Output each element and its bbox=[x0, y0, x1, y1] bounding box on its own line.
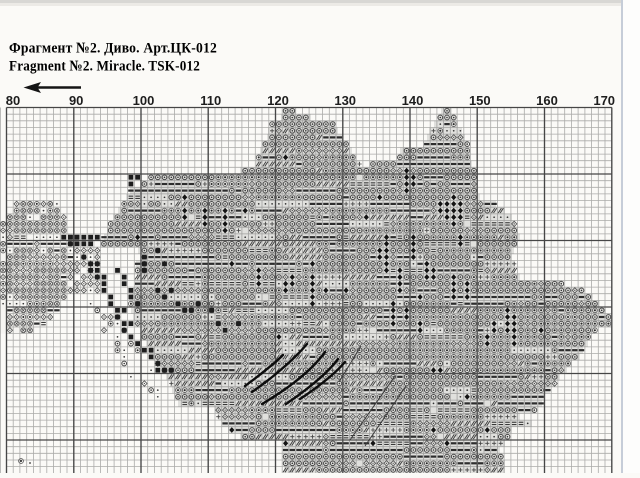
svg-text:Фрагмент №2. Диво. Арт.ЦК-012: Фрагмент №2. Диво. Арт.ЦК-012 bbox=[9, 41, 217, 57]
svg-text:110: 110 bbox=[200, 93, 221, 108]
svg-text:170: 170 bbox=[593, 93, 615, 108]
svg-text:90: 90 bbox=[69, 93, 83, 108]
svg-text:140: 140 bbox=[402, 93, 424, 108]
svg-text:120: 120 bbox=[267, 93, 289, 108]
svg-text:150: 150 bbox=[469, 93, 491, 108]
svg-text:80: 80 bbox=[6, 93, 20, 108]
svg-text:160: 160 bbox=[536, 93, 558, 108]
svg-text:100: 100 bbox=[133, 93, 155, 108]
svg-text:130: 130 bbox=[334, 93, 356, 108]
svg-text:Fragment №2. Miracle. TSK-012: Fragment №2. Miracle. TSK-012 bbox=[9, 59, 200, 75]
